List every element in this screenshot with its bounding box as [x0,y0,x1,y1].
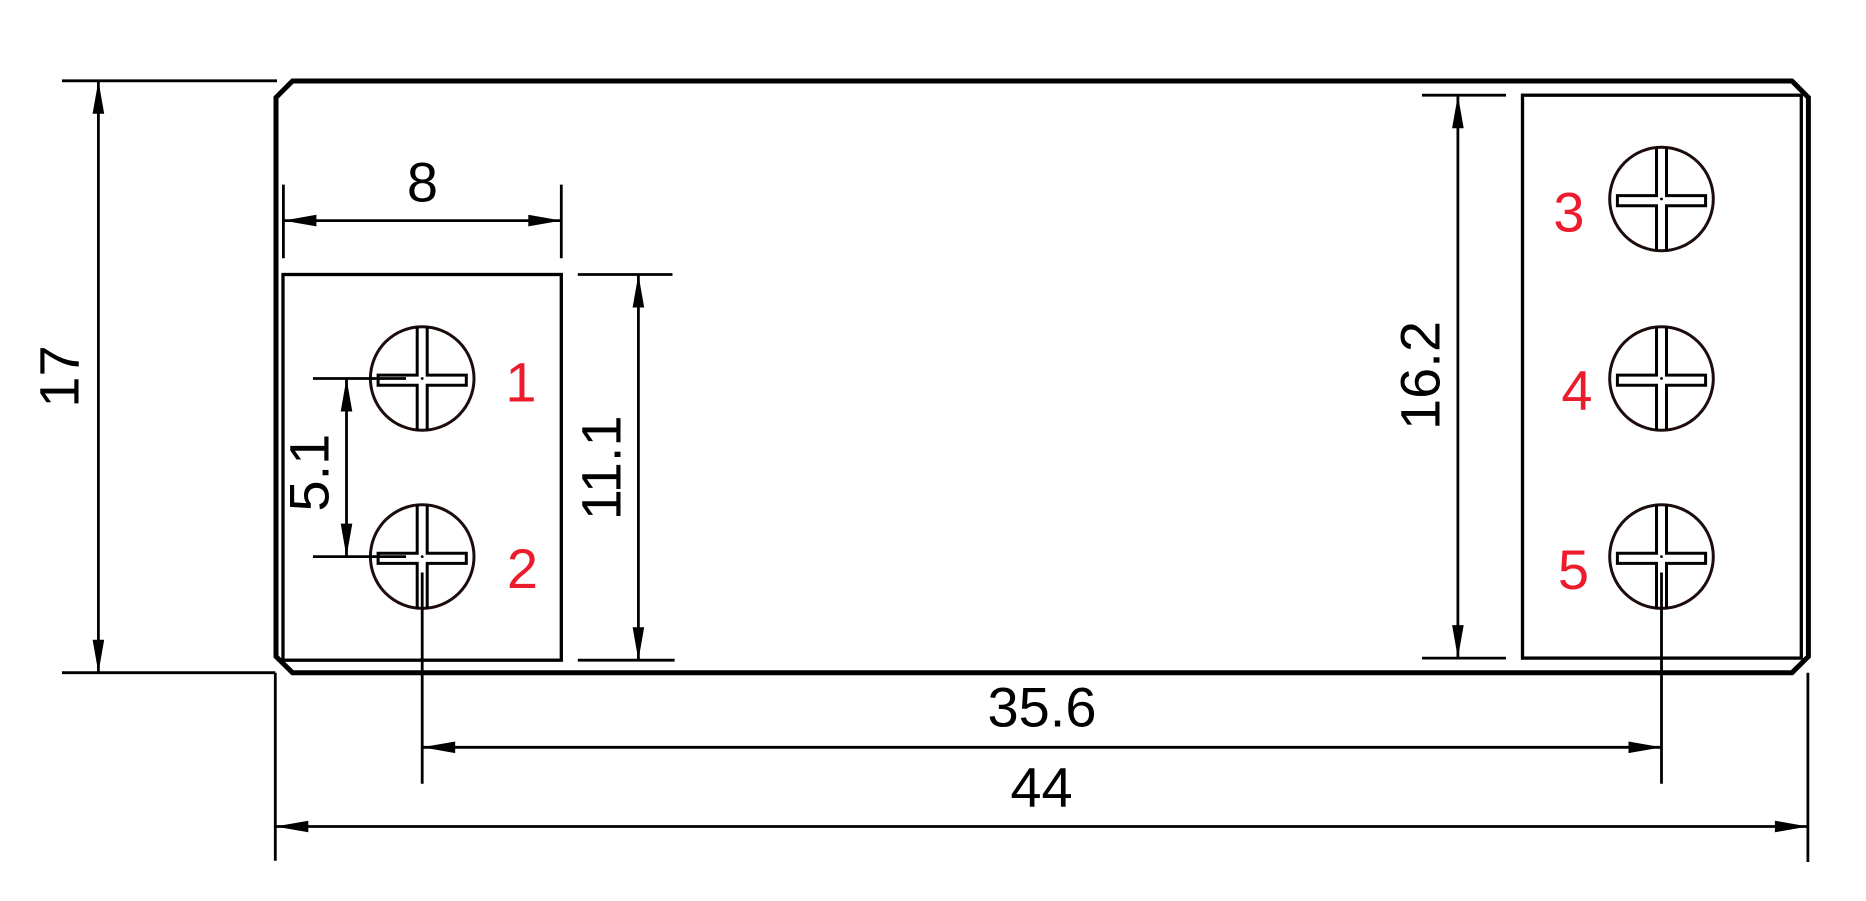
svg-text:2: 2 [507,537,538,600]
svg-text:3: 3 [1553,181,1584,244]
svg-text:5.1: 5.1 [277,434,340,512]
svg-text:4: 4 [1561,359,1592,422]
svg-text:8: 8 [407,151,438,214]
svg-text:11.1: 11.1 [570,415,633,520]
svg-text:1: 1 [505,350,536,413]
svg-text:16.2: 16.2 [1388,321,1451,430]
svg-text:44: 44 [1010,756,1072,819]
svg-text:35.6: 35.6 [988,676,1097,739]
svg-text:5: 5 [1558,538,1589,601]
svg-text:17: 17 [28,345,91,407]
